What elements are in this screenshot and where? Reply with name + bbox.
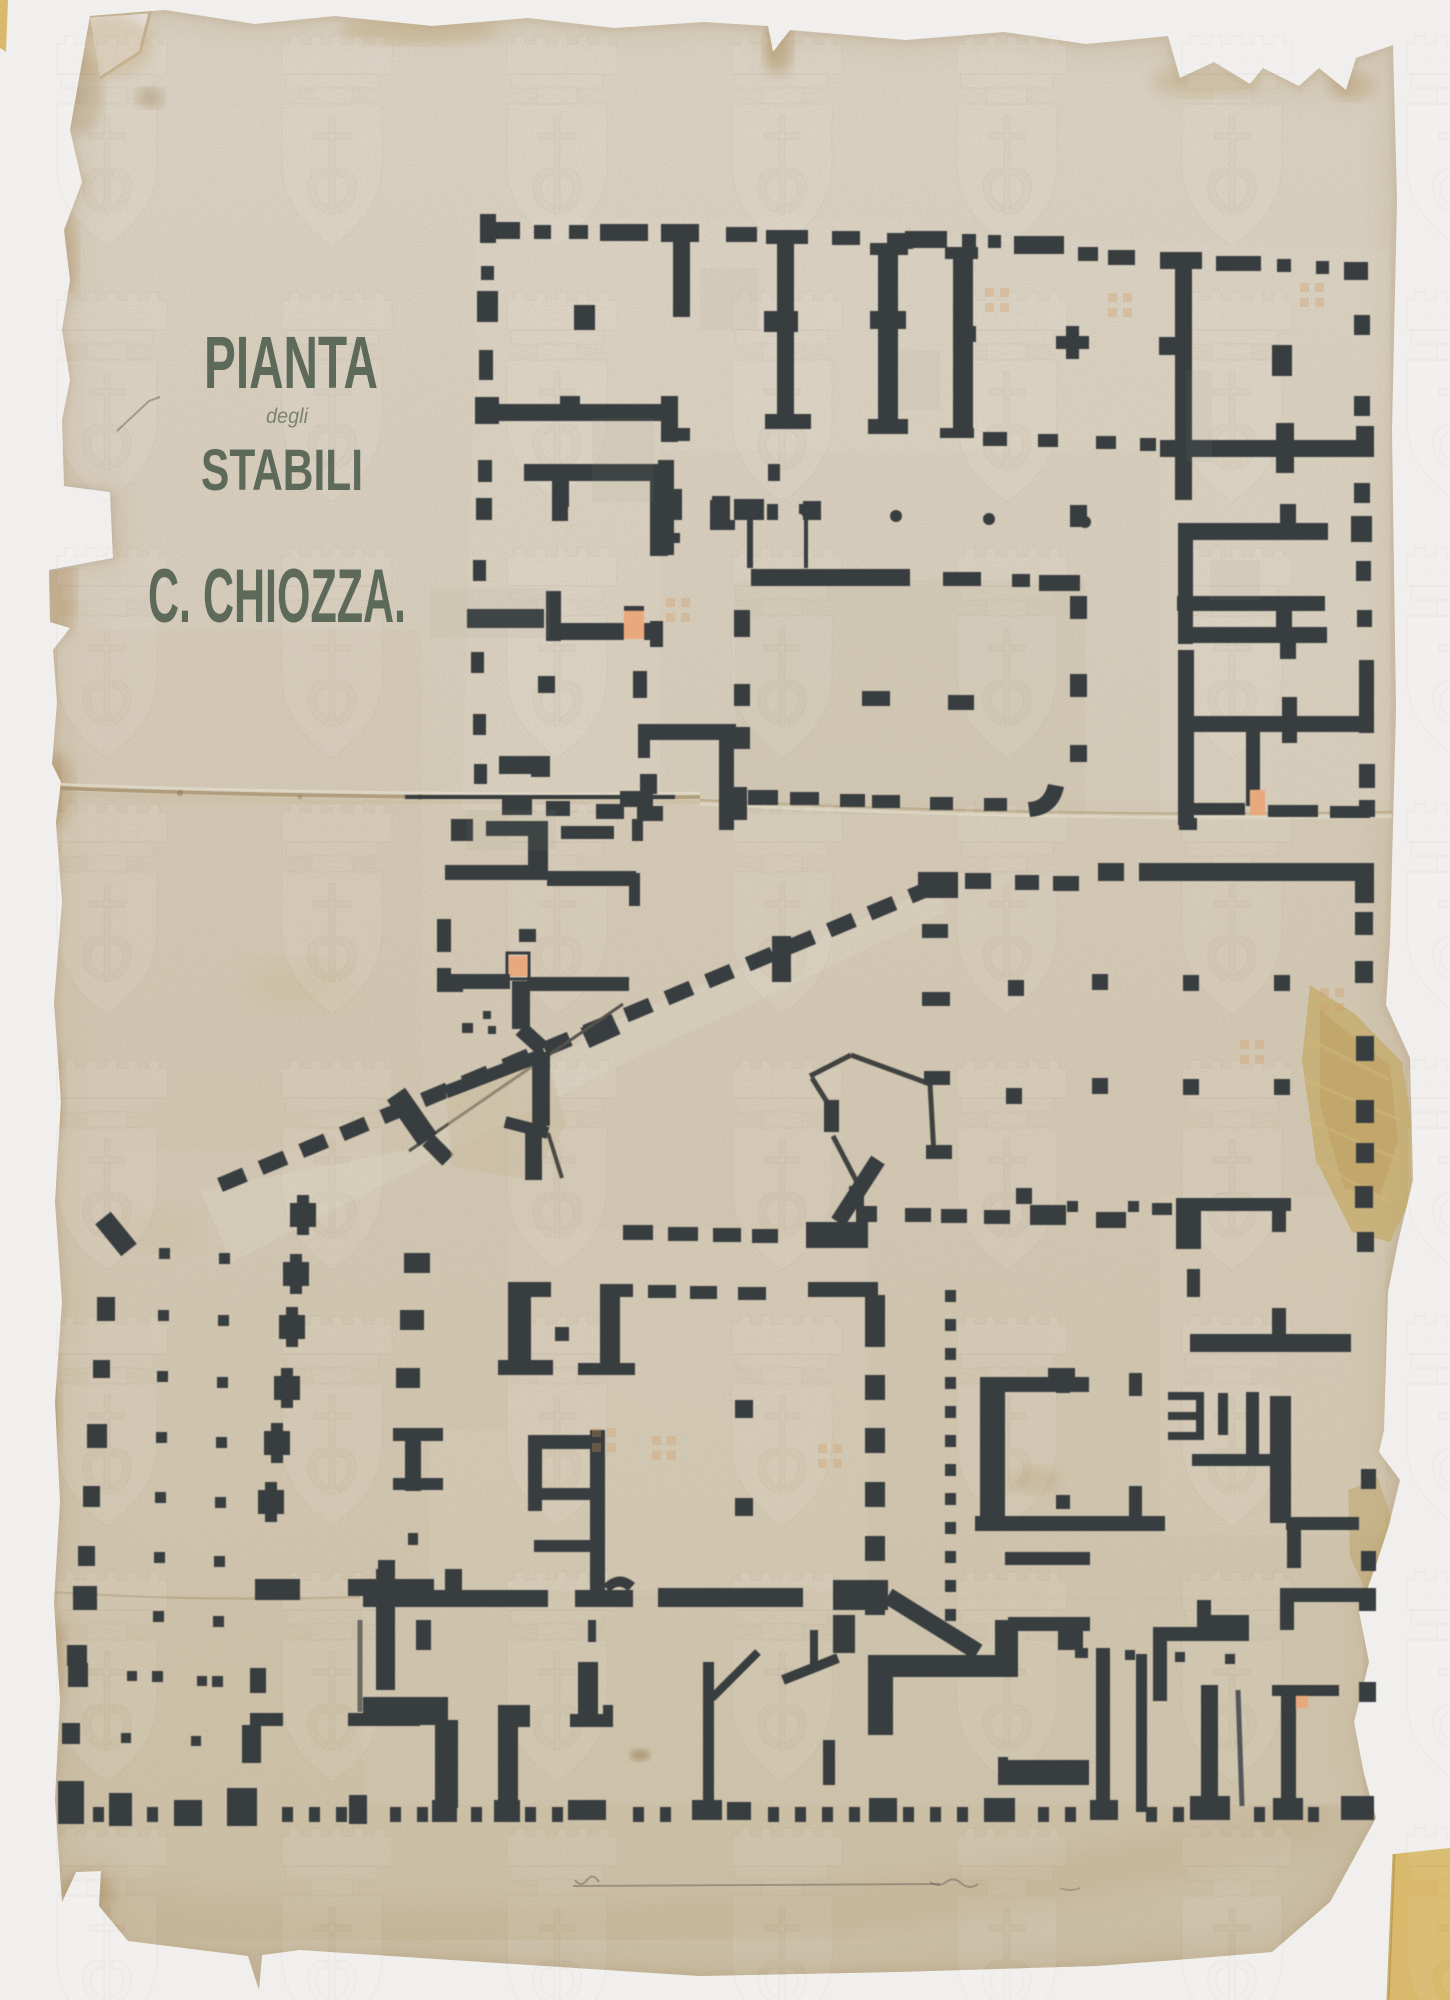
svg-text:C. CHIOZZA.: C. CHIOZZA. bbox=[148, 554, 406, 639]
svg-text:PIANTA: PIANTA bbox=[204, 321, 378, 404]
svg-text:STABILI: STABILI bbox=[201, 438, 363, 503]
svg-text:degli: degli bbox=[266, 405, 309, 428]
